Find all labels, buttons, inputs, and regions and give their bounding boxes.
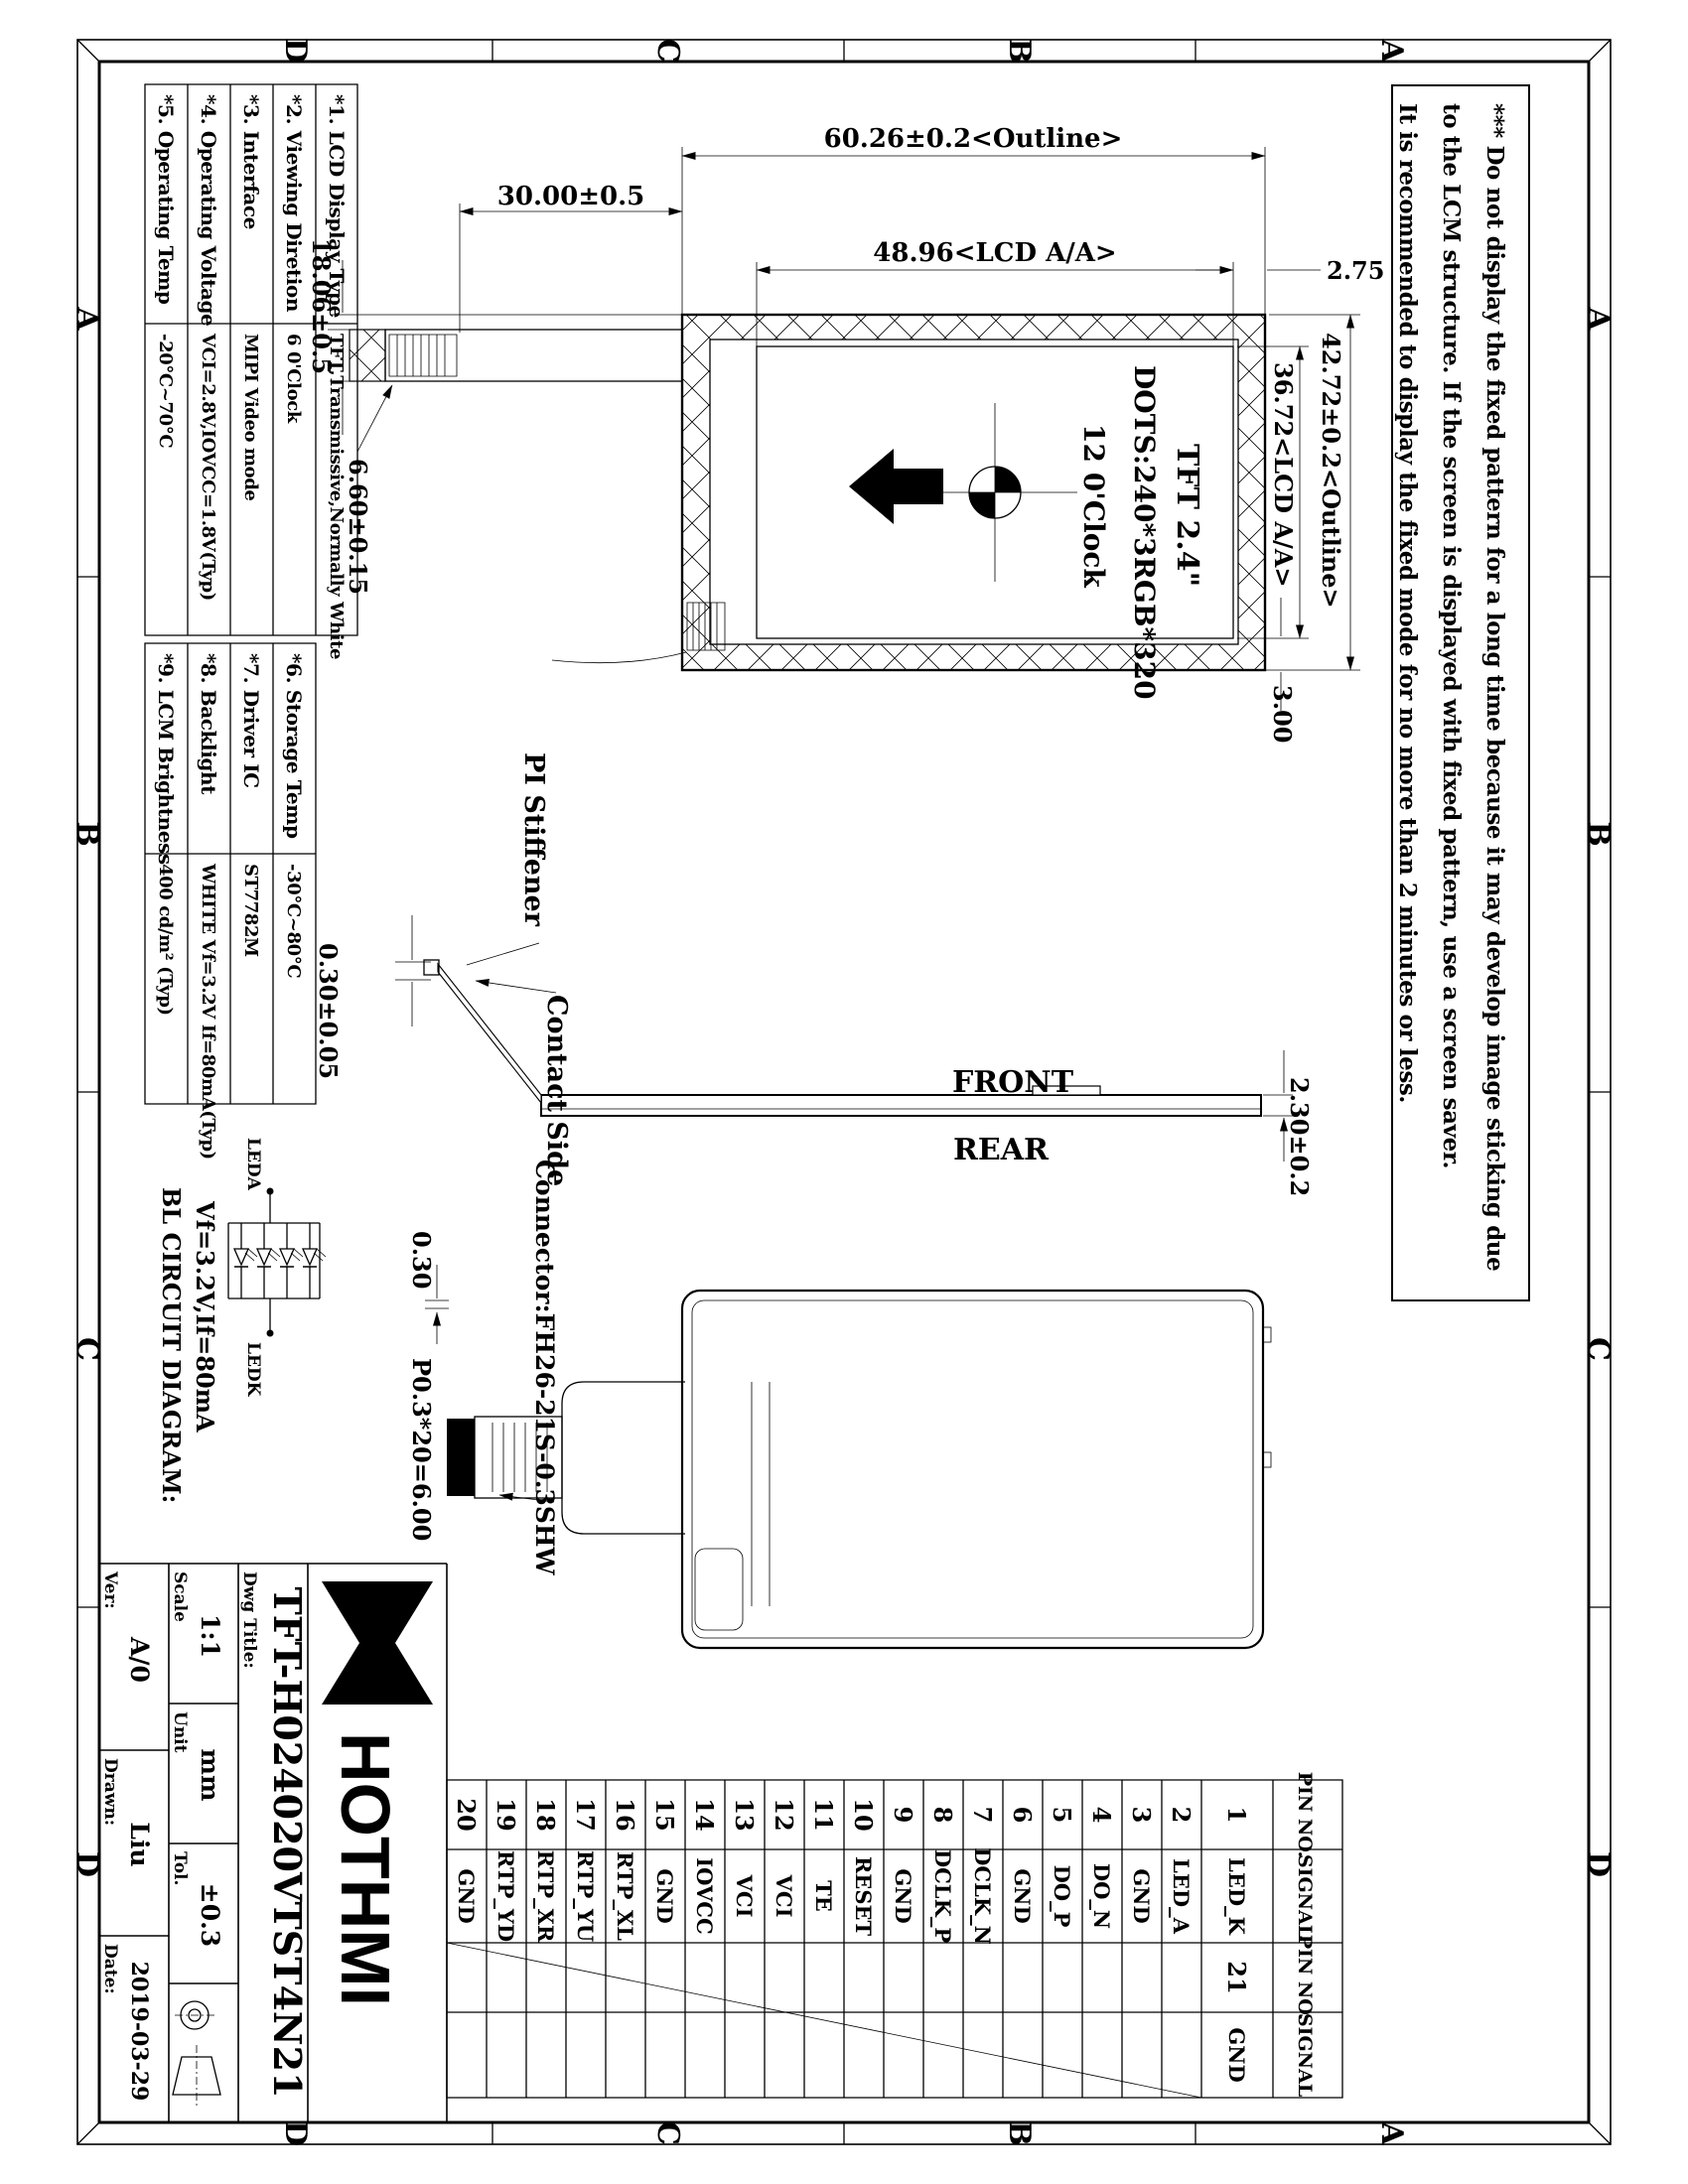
unused-cells-diagonal	[447, 1943, 1201, 2098]
zone-letter: C	[70, 1337, 104, 1361]
date-value: 2019-03-29	[126, 1962, 152, 2102]
scale-label: Scale	[170, 1571, 190, 1622]
spec-label: *5. Operating Temp	[154, 94, 178, 305]
pin-no: 10	[849, 1798, 878, 1831]
spec-value: -30°C~80°C	[283, 864, 304, 978]
extension-lines	[328, 147, 1360, 670]
pin-no: 9	[889, 1807, 917, 1824]
dim-text-aa-h: 36.72<LCD A/A>	[1269, 362, 1298, 588]
spec-value: ST7782M	[240, 864, 261, 957]
brand-name: HOTHMI	[327, 1732, 404, 2006]
pin-signal: LED_K	[1224, 1857, 1249, 1935]
pin-header: PIN NO.	[1294, 1935, 1316, 2021]
spec-value: 6 0'Clock	[283, 334, 304, 424]
spec-value: TFT,Transmissive,Normally White	[326, 334, 347, 659]
pin-no: 2	[1167, 1807, 1196, 1824]
zone-letter: D	[278, 38, 313, 64]
zone-letter: D	[1581, 1851, 1616, 1877]
spec-label: *8. Backlight	[197, 653, 220, 795]
pin-no: 4	[1087, 1807, 1116, 1824]
pin-no: 13	[730, 1798, 759, 1831]
dim-text-outline-h: 42.72±0.2<Outline>	[1317, 333, 1345, 609]
spec-value: MIPI Video mode	[240, 334, 261, 500]
clock-label: 12 0'Clock	[1077, 424, 1110, 588]
dim-text-fpc: 30.00±0.5	[497, 182, 644, 211]
pin-no: 8	[928, 1807, 957, 1824]
spec-value: 400 cd/m² (Typ)	[155, 864, 176, 1016]
pin-header: SIGNAL	[1294, 1854, 1316, 1938]
pin-header: SIGNAL	[1294, 2013, 1316, 2097]
spec-value: WHITE Vf=3.2V If=80mA(Typ)	[198, 863, 218, 1160]
zone-letter: A	[1374, 2120, 1409, 2145]
stiffener-label: PI Stiffener	[518, 752, 549, 927]
fpc-tongue	[562, 1382, 685, 1534]
connector-label: Connector:FH26-21S-0.3SHW	[530, 1160, 559, 1576]
fpc-contacts	[389, 335, 457, 376]
zone-letter: C	[650, 2121, 685, 2145]
dim-text-aa-offset: 2.75	[1327, 256, 1384, 285]
pin-no: 6	[1008, 1807, 1037, 1824]
pin-no: 12	[770, 1798, 798, 1831]
pin-signal: DCLK_N	[970, 1847, 995, 1945]
pin-signal: LED_A	[1169, 1858, 1194, 1934]
zone-letter: D	[70, 1851, 104, 1877]
pin-signal: TE	[811, 1880, 836, 1912]
tol-value: ±0.3	[196, 1883, 224, 1947]
pin-no: 5	[1048, 1807, 1076, 1824]
side-view: FRONT REAR PI Stiffener Contact Side 0.3…	[314, 752, 1314, 1196]
zone-letter: B	[1002, 2120, 1037, 2145]
display-size-label: TFT 2.4"	[1170, 444, 1204, 587]
zone-letter: C	[650, 39, 685, 63]
drawn-label: Drawn:	[100, 1758, 120, 1826]
zone-letter: B	[1002, 38, 1037, 63]
hothmi-logo-icon: H	[322, 1581, 433, 1705]
pin-no: 16	[611, 1798, 639, 1831]
bl-spec: Vf=3.2V,If=80mA	[191, 1200, 219, 1433]
pin-signal: DO_N	[1089, 1863, 1114, 1929]
anode-node	[267, 1188, 274, 1195]
pin-no: 7	[968, 1807, 997, 1824]
engineering-drawing-sheet: D C B A D C B A A B C D A B C D *** Do n…	[0, 0, 1688, 2184]
zone-letter: C	[1581, 1337, 1616, 1361]
pin-no: 17	[571, 1798, 600, 1831]
side-fpc-tail	[438, 964, 541, 1103]
title-block: Ver: A/0 Drawn: Liu Date: 2019-03-29 Sca…	[99, 1564, 447, 2122]
dim-text-bottom-margin: 3.00	[1268, 685, 1297, 743]
pin-header: PIN NO.	[1294, 1772, 1316, 1858]
pin-no-extra: 21	[1222, 1961, 1251, 1993]
front-side-label: FRONT	[952, 1065, 1074, 1100]
cathode-node	[267, 1330, 274, 1337]
scale-value: 1:1	[196, 1614, 224, 1658]
fpc-fold-line	[552, 652, 686, 663]
note-line: to the LCM structure. If the screen is d…	[1438, 103, 1465, 1168]
connector-latch	[447, 1419, 475, 1496]
pin-signal: DO_P	[1050, 1865, 1074, 1928]
rear-view: Connector:FH26-21S-0.3SHW 0.30 P0.3*20=6…	[407, 1160, 1271, 1648]
pin-signal: GND	[454, 1868, 479, 1923]
note-line: It is recommended to display the fixed m…	[1394, 103, 1421, 1103]
dim-text-stiffener-t: 0.30±0.05	[314, 943, 343, 1079]
pin-no: 14	[690, 1798, 719, 1831]
logo-letter: H	[363, 1631, 401, 1656]
fpc-stiffener	[350, 330, 385, 381]
unit-label: Unit	[170, 1711, 190, 1753]
zone-letter: A	[70, 306, 104, 331]
pin-no: 15	[650, 1798, 679, 1831]
pin-signal-extra: GND	[1224, 2027, 1249, 2082]
resolution-label: DOTS:240*3RGB*320	[1128, 365, 1161, 700]
pin-signal: GND	[652, 1868, 677, 1923]
pitch-ticks	[425, 1300, 449, 1308]
dim-text-thickness: 2.30±0.2	[1285, 1077, 1314, 1196]
rear-inner	[692, 1300, 1253, 1638]
led-diodes	[234, 1223, 326, 1298]
pin-table: PIN NO. SIGNAL PIN NO. SIGNAL 1 LED_K 21…	[447, 1772, 1342, 2098]
pin-no: 3	[1127, 1807, 1156, 1824]
rear-side-label: REAR	[953, 1133, 1050, 1167]
zone-letter: A	[1581, 306, 1616, 331]
pin-signal: RTP_XR	[533, 1850, 558, 1943]
dim-text-pin-w: 0.30	[407, 1231, 436, 1289]
pin-signal: RESET	[851, 1856, 876, 1937]
dim-text-pitch: P0.3*20=6.00	[407, 1358, 436, 1541]
pin-signal: GND	[1010, 1868, 1035, 1923]
pin-signal: RTP_XL	[613, 1851, 637, 1941]
spec-label: *9. LCM Brightness	[154, 653, 178, 865]
contact-side-label: Contact Side	[541, 995, 572, 1186]
pin-no: 19	[492, 1798, 520, 1831]
zone-letter: B	[1581, 821, 1616, 846]
projection-symbol-icon	[173, 2001, 220, 2107]
pin-signal: RTP_YD	[493, 1850, 518, 1942]
bl-cathode-label: LEDK	[243, 1342, 263, 1398]
dim-text-fpc-w: 6.60±0.15	[344, 459, 372, 595]
spec-label: *2. Viewing Diretion	[282, 94, 306, 313]
front-view: TFT 2.4" DOTS:240*3RGB*320 12 0'Clock 30…	[307, 124, 1384, 743]
dim-text-outline-w: 60.26±0.2<Outline>	[824, 124, 1123, 154]
bl-title: BL CIRCUIT DIAGRAM:	[157, 1187, 186, 1503]
spec-label: *6. Storage Temp	[282, 653, 306, 839]
spec-label: *3. Interface	[239, 94, 263, 229]
pin-signal: IOVCC	[692, 1857, 717, 1934]
rear-tab	[1263, 1327, 1271, 1342]
dim-text-aa-w: 48.96<LCD A/A>	[873, 238, 1116, 268]
dim-text-fpc-pos: 18.06±0.5	[307, 238, 336, 374]
dwg-title-label: Dwg Title:	[239, 1571, 259, 1669]
pin-no: 1	[1222, 1807, 1251, 1824]
notes-box: *** Do not display the fixed pattern for…	[1392, 85, 1529, 1300]
bl-anode-label: LEDA	[243, 1138, 263, 1191]
date-label: Date:	[100, 1944, 120, 1994]
spec-label: *4. Operating Voltage	[197, 94, 220, 326]
viewing-direction-arrow-icon	[849, 449, 943, 524]
pin-signal: DCLK_P	[930, 1849, 955, 1943]
zone-letter: A	[1374, 38, 1409, 63]
unit-value: mm	[196, 1749, 224, 1802]
part-number: TFT-H024020VTST4N21	[265, 1586, 310, 2098]
drawn-value: Liu	[125, 1822, 154, 1866]
pin-signal: RTP_YU	[573, 1850, 598, 1942]
fpc-inside-lines	[752, 1382, 770, 1606]
pin-no: 18	[531, 1798, 560, 1831]
leader-lines	[467, 943, 556, 993]
ver-label: Ver:	[100, 1570, 120, 1609]
tol-label: Tol.	[170, 1851, 190, 1885]
zone-letter: D	[278, 2120, 313, 2146]
pin-no: 11	[809, 1798, 838, 1831]
spec-value: VCI=2.8V,IOVCC=1.8V(Typ)	[198, 333, 218, 601]
side-ext-lines	[395, 962, 1293, 1116]
rear-tab	[1263, 1452, 1271, 1467]
spec-label: *7. Driver IC	[239, 653, 263, 788]
zone-letter: B	[70, 821, 104, 846]
pin-signal: VCI	[732, 1874, 757, 1918]
pin-no: 20	[452, 1798, 481, 1831]
pin-signal: GND	[891, 1868, 915, 1923]
fpc-band	[385, 330, 682, 381]
ver-value: A/0	[125, 1636, 154, 1683]
note-line: *** Do not display the fixed pattern for…	[1481, 103, 1508, 1271]
side-profile	[541, 1095, 1261, 1116]
spec-value: -20°C~70°C	[155, 334, 176, 448]
bl-circuit: BL CIRCUIT DIAGRAM: Vf=3.2V,If=80mA LEDA…	[157, 1138, 326, 1503]
pin-signal: VCI	[772, 1874, 796, 1918]
pin-signal: GND	[1129, 1868, 1154, 1923]
fpc-fold-detail	[695, 1549, 743, 1630]
